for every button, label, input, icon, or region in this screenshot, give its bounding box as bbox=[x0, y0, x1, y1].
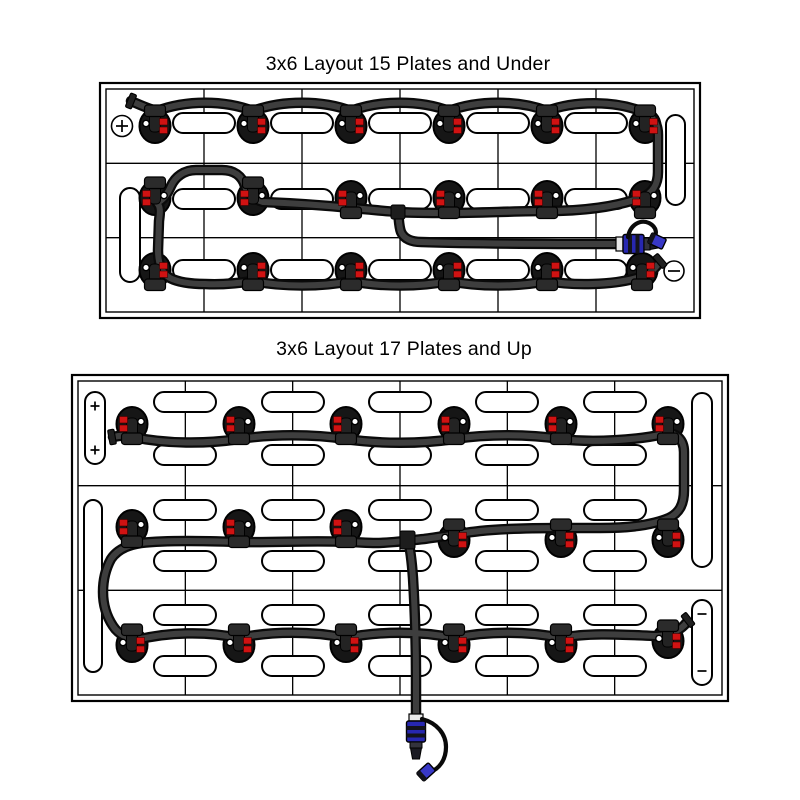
valve-eyelet bbox=[352, 521, 358, 527]
layout-17-plates-and-up bbox=[72, 375, 728, 781]
tube-clamp-cap bbox=[145, 105, 166, 117]
tube-clamp-cap bbox=[444, 624, 465, 636]
valve-eyelet bbox=[138, 521, 144, 527]
cell-pill bbox=[584, 605, 646, 625]
tube-clamp-cap bbox=[537, 207, 558, 219]
red-level-indicator bbox=[334, 520, 342, 527]
valve-eyelet bbox=[567, 418, 573, 424]
red-level-indicator bbox=[120, 520, 128, 527]
tube-clamp-cap bbox=[229, 624, 250, 636]
tee-fitting bbox=[391, 205, 405, 219]
cell-pill bbox=[467, 189, 529, 209]
valve-eyelet bbox=[352, 418, 358, 424]
cell-pill bbox=[262, 392, 324, 412]
red-level-indicator bbox=[673, 634, 681, 641]
red-level-indicator bbox=[356, 271, 364, 278]
tube-clamp-cap bbox=[635, 207, 656, 219]
red-level-indicator bbox=[535, 191, 543, 198]
red-level-indicator bbox=[535, 199, 543, 206]
red-level-indicator bbox=[437, 199, 445, 206]
valve-eyelet bbox=[437, 264, 443, 270]
cell-pill bbox=[154, 500, 216, 520]
red-level-indicator bbox=[566, 533, 574, 540]
red-level-indicator bbox=[160, 263, 168, 270]
cell-pill bbox=[154, 656, 216, 676]
tube-clamp-cap bbox=[632, 279, 653, 291]
red-level-indicator bbox=[227, 520, 235, 527]
red-level-indicator bbox=[339, 191, 347, 198]
tube-clamp-cap bbox=[229, 433, 250, 445]
red-level-indicator bbox=[552, 263, 560, 270]
red-level-indicator bbox=[143, 199, 151, 206]
red-level-indicator bbox=[356, 119, 364, 126]
cell-pill-vertical bbox=[666, 115, 685, 205]
red-level-indicator bbox=[673, 533, 681, 540]
valve-eyelet bbox=[535, 264, 541, 270]
red-level-indicator bbox=[241, 191, 249, 198]
red-level-indicator bbox=[633, 191, 641, 198]
cell-pill bbox=[154, 551, 216, 571]
cell-pill bbox=[467, 260, 529, 280]
cell-pill-vertical bbox=[120, 188, 140, 282]
valve-eyelet bbox=[455, 192, 461, 198]
tee-fitting bbox=[400, 531, 415, 549]
cell-pill bbox=[369, 656, 431, 676]
tube-clamp-cap bbox=[122, 433, 143, 445]
cell-pill bbox=[271, 113, 333, 133]
tube-clamp-cap bbox=[439, 105, 460, 117]
red-level-indicator bbox=[356, 127, 364, 134]
tube-clamp-cap bbox=[635, 105, 656, 117]
red-level-indicator bbox=[258, 263, 266, 270]
valve-eyelet bbox=[357, 192, 363, 198]
cell-pill bbox=[369, 113, 431, 133]
red-level-indicator bbox=[647, 271, 655, 278]
tube-clamp-cap bbox=[243, 105, 264, 117]
valve-eyelet bbox=[161, 192, 167, 198]
red-level-indicator bbox=[334, 417, 342, 424]
tube-clamp-cap bbox=[658, 519, 679, 531]
red-level-indicator bbox=[566, 638, 574, 645]
red-level-indicator bbox=[454, 271, 462, 278]
battery-watering-diagrams bbox=[0, 0, 800, 800]
red-level-indicator bbox=[351, 638, 359, 645]
cell-pill bbox=[476, 445, 538, 465]
red-level-indicator bbox=[454, 263, 462, 270]
cell-pill bbox=[467, 113, 529, 133]
cell-pill bbox=[584, 551, 646, 571]
cell-pill bbox=[476, 500, 538, 520]
red-level-indicator bbox=[244, 646, 252, 653]
diagram-title-15-plates: 3x6 Layout 15 Plates and Under bbox=[8, 54, 800, 75]
cell-pill bbox=[584, 392, 646, 412]
valve-eyelet bbox=[138, 418, 144, 424]
red-level-indicator bbox=[334, 425, 342, 432]
red-level-indicator bbox=[459, 646, 467, 653]
diagram-title-17-plates: 3x6 Layout 17 Plates and Up bbox=[4, 339, 800, 360]
red-level-indicator bbox=[120, 425, 128, 432]
valve-eyelet bbox=[437, 120, 443, 126]
red-level-indicator bbox=[241, 199, 249, 206]
red-level-indicator bbox=[459, 541, 467, 548]
valve-eyelet bbox=[656, 635, 662, 641]
valve-eyelet bbox=[245, 418, 251, 424]
red-level-indicator bbox=[120, 417, 128, 424]
blue-dust-cap bbox=[416, 763, 435, 782]
red-level-indicator bbox=[549, 417, 557, 424]
red-level-indicator bbox=[258, 271, 266, 278]
valve-eyelet bbox=[674, 418, 680, 424]
cell-pill bbox=[262, 551, 324, 571]
red-level-indicator bbox=[566, 541, 574, 548]
valve-eyelet bbox=[143, 120, 149, 126]
cell-pill bbox=[262, 445, 324, 465]
tube-clamp-cap bbox=[341, 279, 362, 291]
red-level-indicator bbox=[137, 638, 145, 645]
cell-pill bbox=[271, 260, 333, 280]
valve-eyelet bbox=[553, 192, 559, 198]
cell-pill bbox=[476, 551, 538, 571]
valve-eyelet bbox=[460, 418, 466, 424]
cell-pill bbox=[476, 392, 538, 412]
red-level-indicator bbox=[673, 541, 681, 548]
red-level-indicator bbox=[137, 646, 145, 653]
cell-pill bbox=[173, 189, 235, 209]
red-level-indicator bbox=[650, 119, 658, 126]
valve-eyelet bbox=[442, 534, 448, 540]
valve-eyelet bbox=[549, 639, 555, 645]
cell-pill bbox=[154, 445, 216, 465]
valve-eyelet bbox=[651, 192, 657, 198]
tube-clamp-cap bbox=[336, 624, 357, 636]
cell-pill bbox=[262, 500, 324, 520]
valve-eyelet bbox=[245, 521, 251, 527]
cell-pill-vertical bbox=[692, 393, 712, 567]
tube-clamp-cap bbox=[444, 519, 465, 531]
red-level-indicator bbox=[227, 417, 235, 424]
tube-clamp-cap bbox=[336, 536, 357, 548]
red-level-indicator bbox=[244, 638, 252, 645]
valve-eyelet bbox=[120, 639, 126, 645]
red-level-indicator bbox=[258, 119, 266, 126]
plus-terminal-icon bbox=[112, 116, 133, 137]
tube-clamp-cap bbox=[243, 177, 264, 189]
valve-eyelet bbox=[339, 264, 345, 270]
valve-eyelet bbox=[549, 534, 555, 540]
tube-clamp-cap bbox=[145, 177, 166, 189]
red-level-indicator bbox=[552, 271, 560, 278]
tube-clamp-cap bbox=[341, 207, 362, 219]
cell-pill bbox=[154, 392, 216, 412]
page: 3x6 Layout 15 Plates and Under 3x6 Layou… bbox=[0, 0, 800, 800]
red-level-indicator bbox=[160, 127, 168, 134]
red-level-indicator bbox=[120, 528, 128, 535]
valve-eyelet bbox=[630, 264, 636, 270]
red-level-indicator bbox=[549, 425, 557, 432]
red-level-indicator bbox=[656, 417, 664, 424]
cell-pill bbox=[584, 656, 646, 676]
cell-pill bbox=[369, 260, 431, 280]
red-level-indicator bbox=[339, 199, 347, 206]
red-level-indicator bbox=[258, 127, 266, 134]
red-level-indicator bbox=[334, 528, 342, 535]
valve-eyelet bbox=[535, 120, 541, 126]
tube-clamp-cap bbox=[122, 536, 143, 548]
red-level-indicator bbox=[356, 263, 364, 270]
valve-eyelet bbox=[339, 120, 345, 126]
tube-clamp-cap bbox=[551, 433, 572, 445]
tube-clamp-cap bbox=[439, 279, 460, 291]
tube-clamp-cap bbox=[658, 433, 679, 445]
tube-clamp-cap bbox=[336, 433, 357, 445]
valve-eyelet bbox=[656, 534, 662, 540]
red-level-indicator bbox=[552, 119, 560, 126]
red-level-indicator bbox=[454, 119, 462, 126]
red-level-indicator bbox=[227, 425, 235, 432]
cell-pill bbox=[584, 445, 646, 465]
cell-pill bbox=[369, 605, 431, 625]
red-level-indicator bbox=[673, 642, 681, 649]
valve-eyelet bbox=[259, 192, 265, 198]
cell-pill bbox=[154, 605, 216, 625]
layout-15-plates-and-under bbox=[100, 83, 700, 318]
tube-clamp-cap bbox=[551, 624, 572, 636]
red-level-indicator bbox=[143, 191, 151, 198]
cell-pill-vertical bbox=[692, 600, 712, 685]
red-level-indicator bbox=[160, 119, 168, 126]
valve-eyelet bbox=[633, 120, 639, 126]
tube-clamp-cap bbox=[444, 433, 465, 445]
valve-eyelet bbox=[241, 120, 247, 126]
cell-pill bbox=[476, 656, 538, 676]
tube-clamp-cap bbox=[551, 519, 572, 531]
cell-pill bbox=[262, 605, 324, 625]
cell-pill bbox=[369, 392, 431, 412]
cell-pill bbox=[173, 113, 235, 133]
red-level-indicator bbox=[160, 271, 168, 278]
red-level-indicator bbox=[442, 417, 450, 424]
tube-clamp-cap bbox=[145, 279, 166, 291]
tube-clamp-cap bbox=[122, 624, 143, 636]
cell-pill bbox=[369, 551, 431, 571]
tube-clamp-cap bbox=[341, 105, 362, 117]
tube-clamp-cap bbox=[537, 279, 558, 291]
red-level-indicator bbox=[566, 646, 574, 653]
red-level-indicator bbox=[552, 127, 560, 134]
red-level-indicator bbox=[459, 533, 467, 540]
valve-eyelet bbox=[334, 639, 340, 645]
valve-eyelet bbox=[442, 639, 448, 645]
valve-eyelet bbox=[143, 264, 149, 270]
red-level-indicator bbox=[437, 191, 445, 198]
tube-clamp-cap bbox=[537, 105, 558, 117]
red-level-indicator bbox=[656, 425, 664, 432]
quick-connect-fitting bbox=[407, 714, 447, 781]
red-level-indicator bbox=[633, 199, 641, 206]
red-level-indicator bbox=[454, 127, 462, 134]
cell-pill bbox=[565, 113, 627, 133]
valve-eyelet bbox=[241, 264, 247, 270]
cell-pill bbox=[262, 656, 324, 676]
tube-clamp-cap bbox=[658, 620, 679, 632]
red-level-indicator bbox=[459, 638, 467, 645]
cell-pill bbox=[369, 500, 431, 520]
red-level-indicator bbox=[650, 127, 658, 134]
tube-clamp-cap bbox=[229, 536, 250, 548]
red-level-indicator bbox=[442, 425, 450, 432]
red-level-indicator bbox=[227, 528, 235, 535]
tube-clamp-cap bbox=[439, 207, 460, 219]
cell-pill bbox=[476, 605, 538, 625]
red-level-indicator bbox=[351, 646, 359, 653]
valve-eyelet bbox=[227, 639, 233, 645]
cell-pill bbox=[584, 500, 646, 520]
tube-clamp-cap bbox=[243, 279, 264, 291]
red-level-indicator bbox=[647, 263, 655, 270]
